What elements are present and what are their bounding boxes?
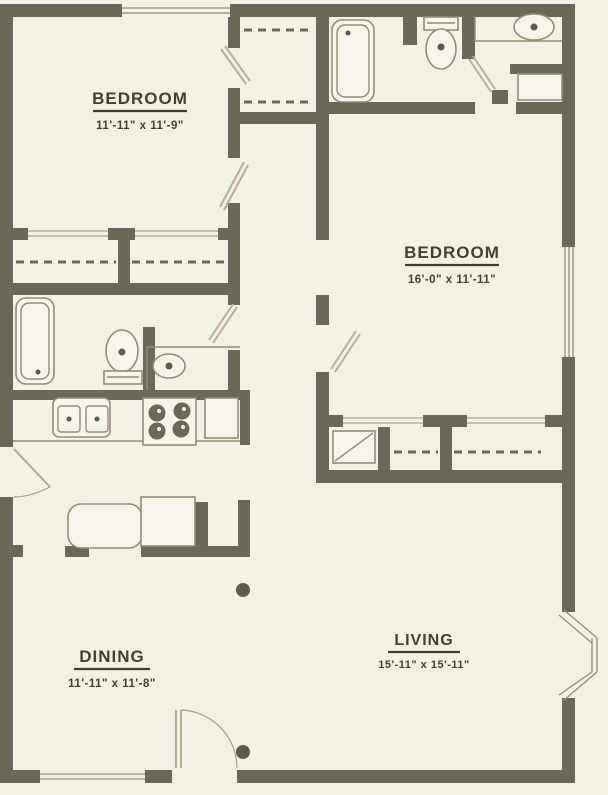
wall-segment	[228, 88, 240, 158]
wall-segment	[316, 295, 329, 325]
room-name: DINING	[79, 647, 145, 666]
floor-plan: BEDROOM 11'-11" x 11'-9" BEDROOM 16'-0" …	[0, 0, 608, 795]
wall-segment	[440, 427, 452, 470]
wall-segment	[237, 770, 575, 783]
wall-segment	[13, 545, 23, 557]
wall-segment	[562, 357, 575, 598]
wall-segment	[562, 712, 575, 783]
room-name: BEDROOM	[92, 89, 188, 108]
wall-segment	[141, 546, 250, 557]
wall-segment	[462, 17, 475, 59]
wall-segment	[403, 17, 417, 45]
wall-segment	[492, 90, 508, 104]
wall-segment	[423, 415, 467, 427]
wall-segment	[118, 240, 130, 283]
wall-segment	[0, 4, 13, 447]
wall-segment	[145, 770, 172, 783]
kitchen-sink-icon	[53, 398, 110, 437]
water-heater-icon	[333, 431, 375, 463]
room-name: BEDROOM	[404, 243, 500, 262]
room-dims: 16'-0" x 11'-11"	[408, 274, 496, 286]
wall-segment	[218, 228, 240, 240]
wall-segment	[516, 102, 562, 114]
wall-segment	[228, 350, 240, 390]
room-label-bedroom-2: BEDROOM 16'-0" x 11'-11"	[404, 243, 500, 286]
room-name: LIVING	[394, 632, 453, 649]
wall-segment	[143, 327, 155, 390]
wall-segment	[562, 4, 575, 247]
wall-segment	[0, 770, 40, 783]
wall-segment	[0, 497, 13, 783]
wall-segment	[562, 698, 575, 712]
wall-segment	[240, 112, 316, 124]
wall-segment	[13, 283, 240, 295]
wall-segment	[240, 390, 250, 445]
room-label-dining: DINING 11'-11" x 11'-8"	[68, 647, 156, 690]
wall-segment	[329, 102, 475, 114]
linen-closet	[518, 74, 562, 100]
wall-segment	[316, 372, 329, 483]
island-counter	[68, 504, 142, 548]
wall-segment	[108, 228, 135, 240]
column-dot	[236, 745, 250, 759]
wall-segment	[195, 502, 208, 548]
wall-segment	[562, 598, 575, 612]
stove-icon	[143, 398, 196, 445]
column-dot	[236, 583, 250, 597]
toilet-icon	[424, 17, 458, 69]
bathtub-icon	[16, 298, 54, 384]
room-dims: 11'-11" x 11'-8"	[68, 678, 156, 690]
wall-segment	[13, 228, 28, 240]
wall-segment	[316, 17, 329, 240]
wall-segment	[378, 427, 390, 470]
refrigerator-icon	[205, 398, 238, 438]
wall-segment	[228, 17, 240, 48]
room-dims: 15'-11" x 15'-11"	[378, 659, 469, 671]
room-dims: 11'-11" x 11'-9"	[96, 120, 184, 132]
wall-segment	[510, 64, 562, 74]
bathtub-icon	[332, 20, 374, 102]
pantry-unit	[141, 497, 195, 546]
window	[40, 770, 145, 783]
room-label-bedroom-1: BEDROOM 11'-11" x 11'-9"	[92, 89, 188, 132]
wall-segment	[316, 470, 562, 483]
wall-segment	[0, 4, 575, 17]
wall-segment	[316, 415, 343, 427]
floor-plan-drawing: BEDROOM 11'-11" x 11'-9" BEDROOM 16'-0" …	[0, 0, 608, 795]
window	[122, 4, 230, 17]
wall-segment	[545, 415, 575, 427]
